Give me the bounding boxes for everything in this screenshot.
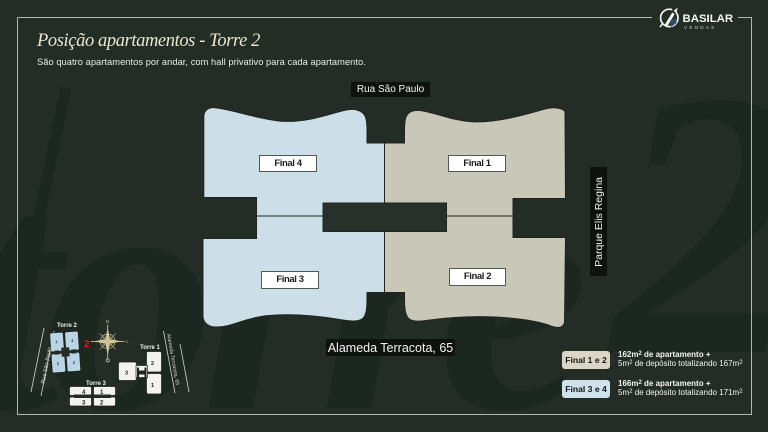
svg-text:Torre 1: Torre 1 bbox=[140, 345, 161, 351]
svg-text:Torre 3: Torre 3 bbox=[86, 381, 107, 387]
svg-text:2: 2 bbox=[84, 339, 90, 350]
svg-text:L: L bbox=[126, 339, 129, 344]
svg-text:3: 3 bbox=[125, 371, 128, 377]
svg-text:Torre 2: Torre 2 bbox=[57, 323, 78, 329]
svg-text:2: 2 bbox=[151, 361, 154, 367]
svg-text:N: N bbox=[106, 319, 109, 324]
svg-text:1: 1 bbox=[151, 383, 154, 389]
